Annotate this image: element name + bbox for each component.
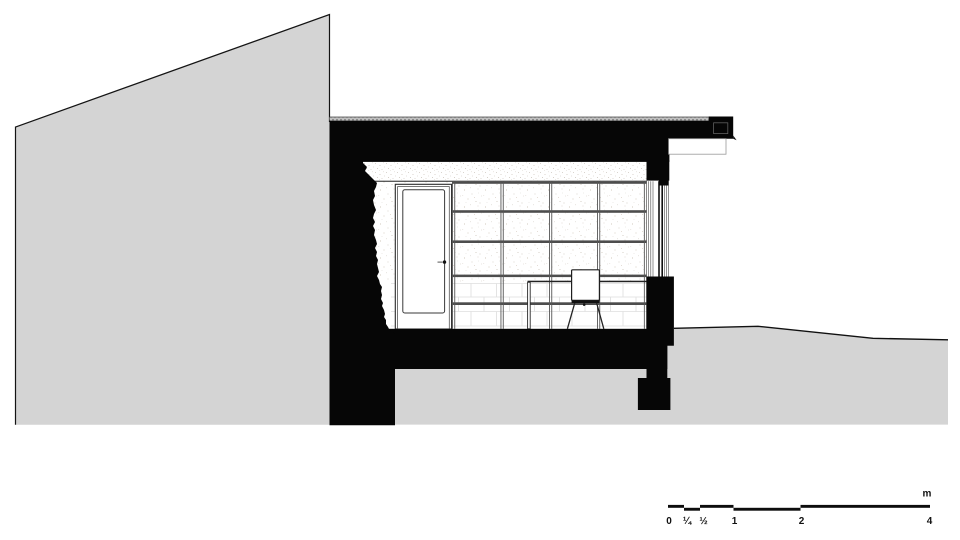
svg-text:4: 4 <box>927 516 933 527</box>
svg-text:1: 1 <box>732 516 738 527</box>
svg-text:2: 2 <box>799 516 805 527</box>
svg-text:½: ½ <box>699 516 707 527</box>
svg-text:0: 0 <box>666 516 672 527</box>
svg-text:m: m <box>923 489 932 500</box>
svg-text:¼: ¼ <box>683 516 692 527</box>
